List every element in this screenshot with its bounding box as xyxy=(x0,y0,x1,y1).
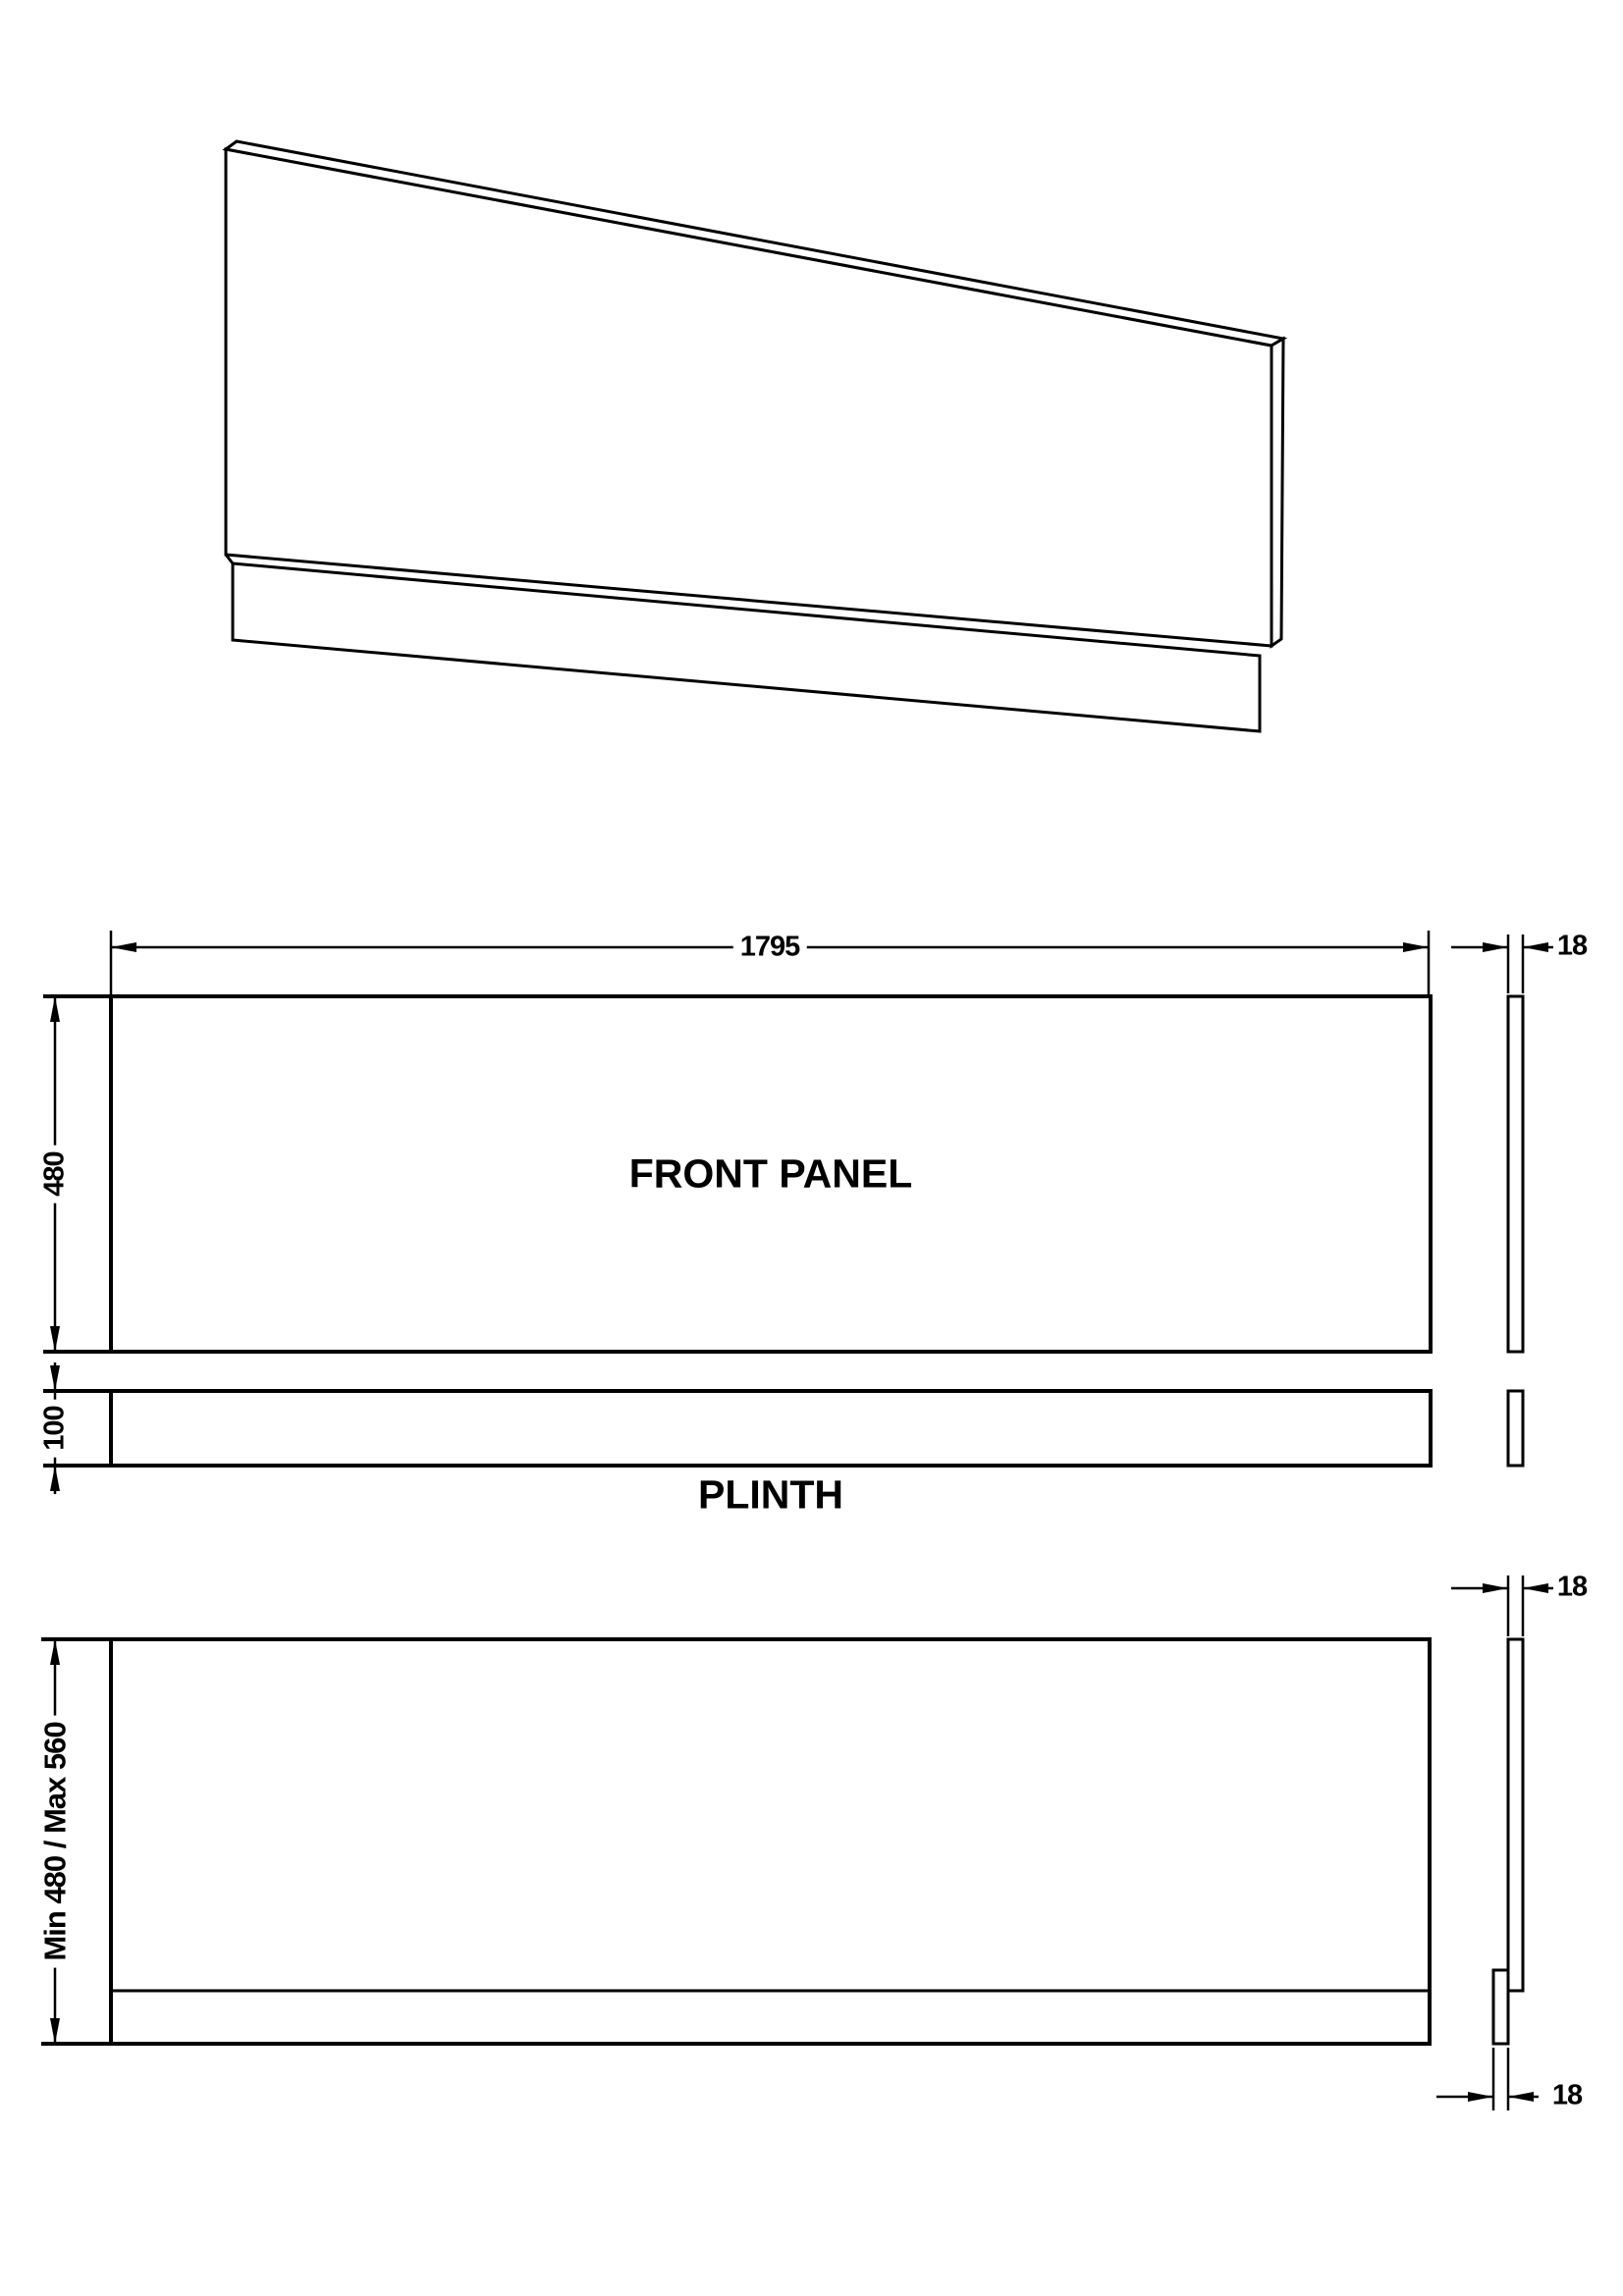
dim-height-480: 480 xyxy=(39,1145,72,1202)
combined-side-plinth-outline xyxy=(1493,1970,1508,2044)
dim-width-1795: 1795 xyxy=(733,932,807,964)
dim-thickness-18-combined-top: 18 xyxy=(1557,1574,1587,1602)
arrowhead xyxy=(1508,2092,1534,2102)
plinth-outline xyxy=(111,1391,1431,1466)
plinth-label: PLINTH xyxy=(698,1475,843,1516)
perspective-panel-face xyxy=(226,149,1271,646)
perspective-view xyxy=(226,141,1283,731)
arrowhead xyxy=(50,996,60,1022)
front-panel-label: FRONT PANEL xyxy=(629,1154,913,1195)
dim-thickness-18-combined-bottom: 18 xyxy=(1552,2082,1582,2110)
dim-height-minmax: Min 480 / Max 560 xyxy=(38,1715,73,1967)
arrowhead xyxy=(1468,2092,1493,2102)
perspective-panel-right-edge xyxy=(1271,339,1283,646)
arrowhead xyxy=(1483,942,1508,952)
front-panel-view xyxy=(43,931,1553,1352)
arrowhead xyxy=(50,2018,60,2044)
dim-height-100: 100 xyxy=(39,1399,72,1457)
plinth-side-outline xyxy=(1508,1391,1523,1466)
arrowhead xyxy=(50,1639,60,1665)
dim-thickness-18-front: 18 xyxy=(1557,933,1587,961)
combined-view xyxy=(41,1575,1553,2110)
combined-side-panel-outline xyxy=(1508,1639,1523,1991)
arrowhead xyxy=(50,1326,60,1352)
arrowhead xyxy=(1523,1583,1548,1593)
arrowhead xyxy=(1403,942,1429,952)
arrowhead xyxy=(1483,1583,1508,1593)
front-panel-side-outline xyxy=(1508,996,1523,1352)
combined-outline xyxy=(111,1639,1430,2044)
arrowhead xyxy=(50,1365,60,1391)
technical-drawing-page: 1795 18 480 FRONT PANEL 100 PLINTH Min 4… xyxy=(0,0,1623,2296)
arrowhead xyxy=(1523,942,1548,952)
drawing-linework xyxy=(0,0,1623,2296)
arrowhead xyxy=(50,1466,60,1491)
arrowhead xyxy=(111,942,136,952)
